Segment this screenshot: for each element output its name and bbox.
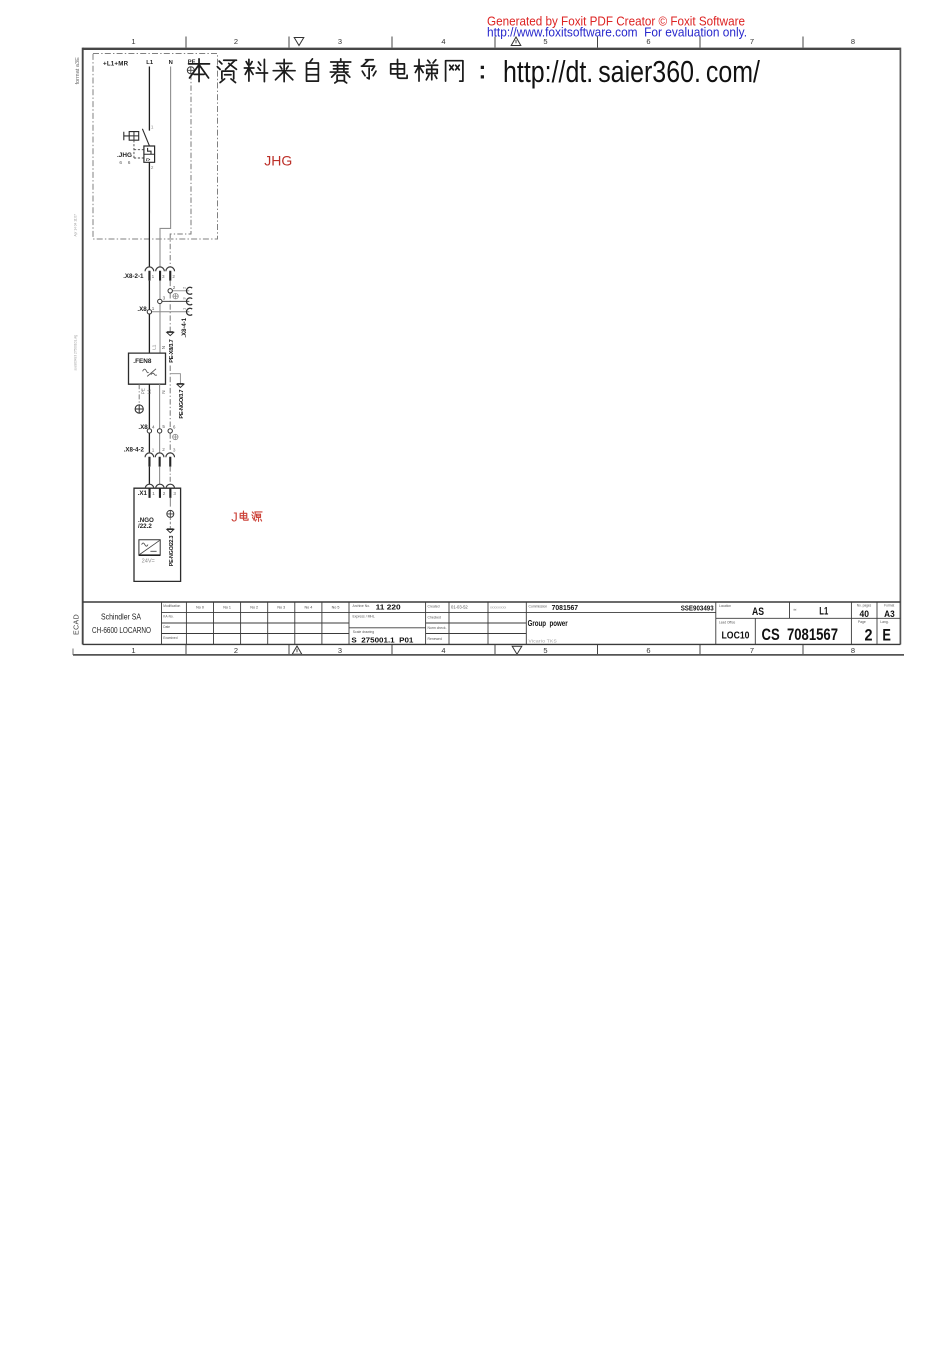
svg-text:6: 6 [128, 160, 131, 166]
svg-text:6: 6 [119, 160, 122, 166]
svg-text:6: 6 [646, 646, 650, 655]
svg-text:Archive No.: Archive No. [353, 604, 371, 608]
svg-text:No 4: No 4 [305, 605, 313, 609]
svg-text:Schindler SA: Schindler SA [101, 613, 142, 622]
svg-text:2: 2 [172, 274, 175, 279]
svg-text:5: 5 [543, 646, 547, 655]
svg-text:1: 1 [131, 37, 135, 46]
svg-text:http://www.foxitsoftware.com: http://www.foxitsoftware.com For evaluat… [487, 25, 747, 40]
svg-text:A3: A3 [884, 609, 895, 619]
svg-text:No 0: No 0 [196, 605, 204, 609]
svg-text:6: 6 [173, 424, 176, 429]
svg-text:4: 4 [152, 424, 155, 429]
svg-text:No 2: No 2 [250, 605, 258, 609]
svg-text:http://dt. saier360. com/: http://dt. saier360. com/ [503, 54, 760, 89]
svg-text:.JHG: .JHG [117, 152, 132, 159]
svg-text:Location: Location [719, 604, 731, 608]
svg-text:LOC10: LOC10 [722, 629, 750, 641]
svg-text:1: 1 [181, 307, 186, 310]
svg-text:N: N [169, 60, 173, 66]
svg-text:3: 3 [338, 37, 342, 46]
svg-text:Examined: Examined [163, 636, 177, 640]
svg-text:01-03-52: 01-03-52 [451, 604, 468, 609]
svg-text:N: N [161, 346, 166, 349]
svg-text:8: 8 [851, 646, 855, 655]
svg-text:PE-X8/3.7: PE-X8/3.7 [169, 339, 175, 362]
svg-text:Checked: Checked [428, 616, 441, 620]
svg-text:2: 2 [163, 491, 166, 496]
svg-text:4: 4 [441, 37, 445, 46]
svg-text:Lead Office: Lead Office [719, 621, 735, 625]
svg-text:L1: L1 [147, 389, 152, 395]
svg-text:1: 1 [152, 448, 155, 453]
svg-text:SSE903493: SSE903493 [681, 605, 714, 612]
svg-text:1: 1 [151, 124, 154, 129]
svg-text:11 220: 11 220 [376, 603, 401, 612]
svg-text:Format: Format [884, 604, 894, 608]
svg-text:N: N [161, 390, 166, 393]
svg-text:Express / MHL: Express / MHL [353, 614, 375, 618]
svg-text:Modification: Modification [163, 604, 180, 608]
svg-text:Lang.: Lang. [880, 620, 889, 624]
svg-text:Apr 14 04 11:07: Apr 14 04 11:07 [74, 214, 78, 237]
svg-text:1: 1 [152, 274, 155, 279]
svg-text:+L1+MR: +L1+MR [103, 60, 129, 67]
svg-text:No 5: No 5 [332, 605, 340, 609]
svg-text:6: 6 [646, 37, 650, 46]
svg-text:AS: AS [752, 606, 764, 618]
svg-text:/22.2: /22.2 [138, 523, 152, 530]
svg-text:.X8: .X8 [138, 424, 148, 431]
svg-text:J: J [231, 510, 238, 525]
svg-text:Created: Created [428, 605, 440, 609]
svg-text:2: 2 [151, 165, 154, 170]
svg-text:No 3: No 3 [277, 605, 285, 609]
svg-text:xxxxxxxxx: xxxxxxxxx [490, 605, 506, 609]
svg-text:2: 2 [162, 447, 165, 452]
svg-text:.X8-2-1: .X8-2-1 [123, 273, 144, 280]
svg-text:24V=: 24V= [142, 558, 155, 564]
svg-text:Commission: Commission [529, 605, 548, 609]
svg-text:Date: Date [163, 625, 170, 629]
svg-text:.X1: .X1 [138, 490, 148, 497]
svg-text:I>: I> [146, 157, 150, 163]
svg-text:40: 40 [860, 609, 870, 619]
svg-text:PE: PE [140, 388, 145, 394]
svg-text:.X8: .X8 [137, 306, 147, 313]
svg-text:1: 1 [131, 646, 135, 655]
svg-text:format a3E: format a3E [75, 57, 81, 85]
svg-text:2: 2 [865, 626, 873, 645]
svg-text:S 275001.1 P01: S 275001.1 P01 [351, 636, 414, 645]
svg-text:≃: ≃ [793, 607, 797, 612]
svg-text:5: 5 [543, 37, 547, 46]
svg-text:3: 3 [173, 448, 176, 453]
svg-text:ECAD: ECAD [74, 614, 81, 635]
svg-text:7: 7 [750, 646, 754, 655]
svg-text:2: 2 [173, 285, 176, 290]
svg-text:.X8-4-1: .X8-4-1 [182, 317, 188, 337]
svg-text:8: 8 [851, 37, 855, 46]
svg-text:No. pages: No. pages [857, 604, 872, 608]
svg-text:1: 1 [152, 491, 155, 496]
svg-text:Scale drawing: Scale drawing [353, 630, 374, 634]
svg-text:KA-No.: KA-No. [163, 615, 173, 619]
svg-text:2: 2 [181, 286, 186, 289]
svg-text:PE-NGO/22.3: PE-NGO/22.3 [169, 535, 175, 566]
svg-text:2: 2 [234, 37, 238, 46]
svg-text:Norm check.: Norm check. [428, 626, 447, 630]
svg-text:7081567: 7081567 [552, 605, 579, 612]
svg-text:3: 3 [181, 297, 186, 300]
svg-text:Vicario TKS: Vicario TKS [529, 639, 557, 645]
svg-text:Group power: Group power [528, 619, 569, 628]
svg-text:3: 3 [163, 295, 166, 300]
svg-text:3: 3 [173, 491, 176, 496]
svg-text:E: E [882, 626, 891, 645]
svg-text:5: 5 [162, 424, 165, 429]
svg-text:sse903493 27500101.vlg: sse903493 27500101.vlg [74, 335, 78, 371]
svg-text:L1: L1 [152, 344, 157, 350]
svg-text:JHG: JHG [264, 152, 292, 168]
svg-text:3: 3 [162, 274, 165, 279]
svg-text:Page: Page [858, 620, 866, 624]
svg-text:1: 1 [152, 306, 155, 311]
svg-text:4: 4 [441, 646, 445, 655]
svg-text:Renewed: Renewed [428, 637, 442, 641]
svg-text:3: 3 [338, 646, 342, 655]
svg-text:.FEN8: .FEN8 [133, 358, 152, 365]
svg-text:L1: L1 [819, 605, 828, 617]
svg-text:No 1: No 1 [223, 605, 231, 609]
svg-text:CH-6600 LOCARNO: CH-6600 LOCARNO [92, 626, 151, 635]
svg-text:.X8-4-2: .X8-4-2 [124, 446, 145, 453]
svg-text:2: 2 [234, 646, 238, 655]
svg-text:L1: L1 [146, 60, 154, 66]
svg-text:CS 7081567: CS 7081567 [762, 626, 839, 644]
svg-text:PE-NGO/3.7: PE-NGO/3.7 [179, 390, 185, 419]
svg-text:7: 7 [750, 37, 754, 46]
